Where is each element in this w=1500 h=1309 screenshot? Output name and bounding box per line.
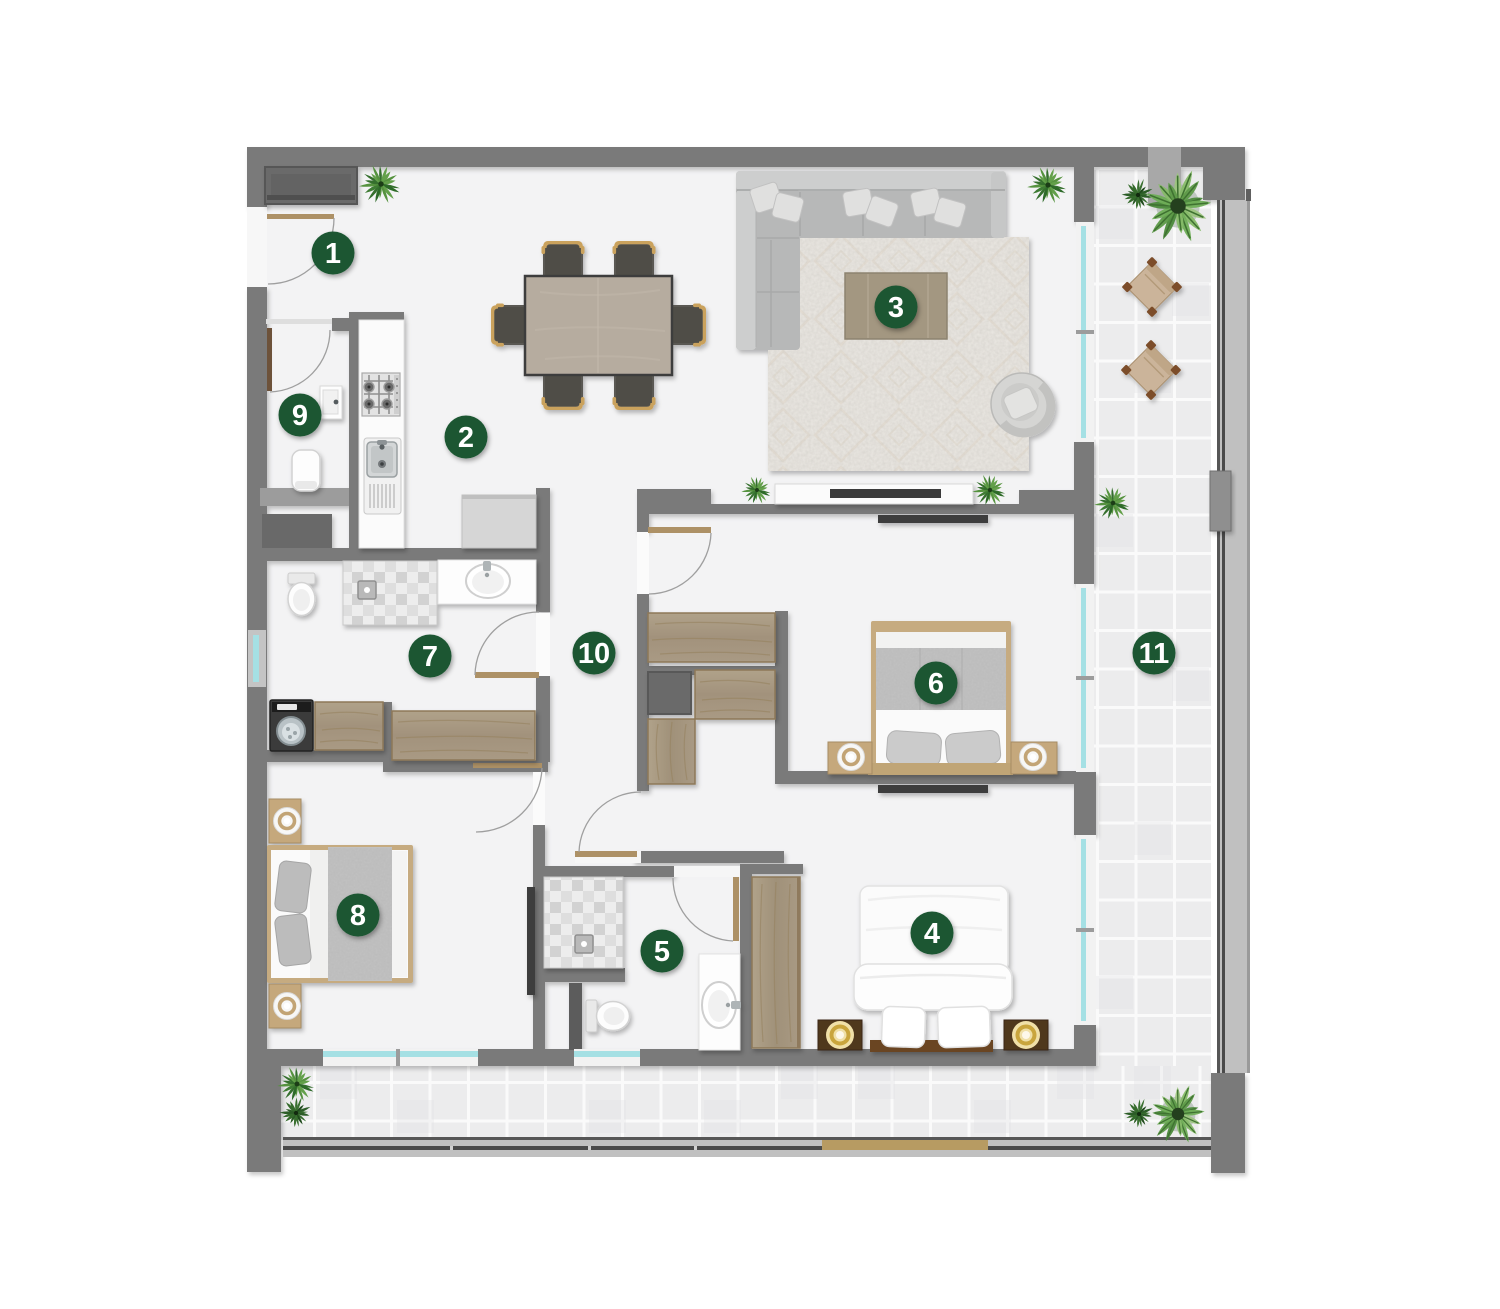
svg-text:10: 10 [578,638,610,670]
svg-text:4: 4 [924,918,940,950]
svg-text:9: 9 [292,400,308,432]
svg-text:3: 3 [888,292,904,324]
svg-text:8: 8 [350,900,366,932]
svg-text:6: 6 [928,668,944,700]
svg-text:7: 7 [422,641,438,673]
svg-text:11: 11 [1139,638,1170,670]
svg-text:2: 2 [458,422,474,454]
svg-text:5: 5 [654,936,670,968]
svg-text:1: 1 [325,238,341,270]
